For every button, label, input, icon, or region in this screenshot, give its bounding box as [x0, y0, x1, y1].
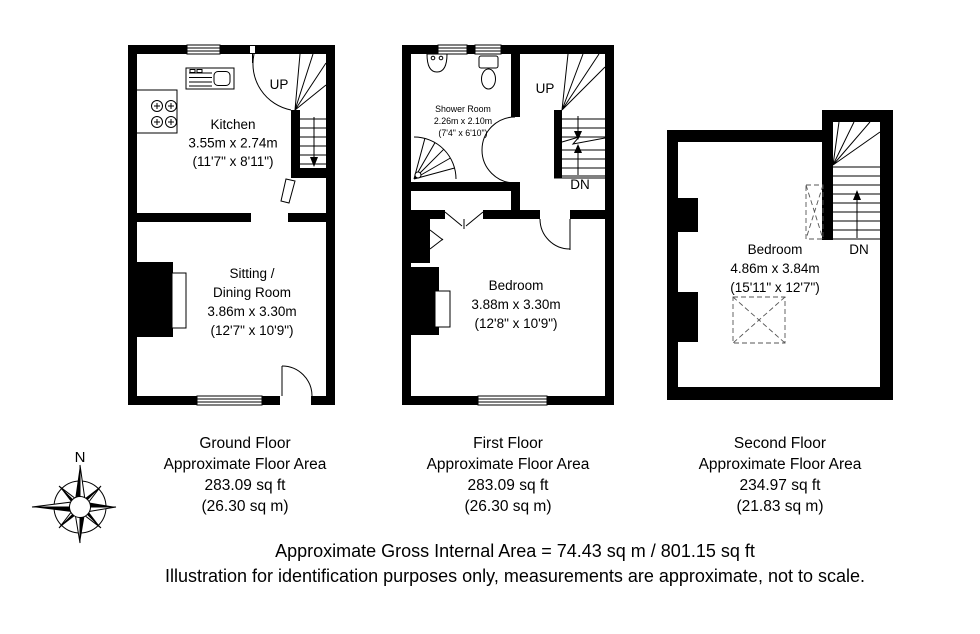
skylight-dashed: [733, 297, 785, 343]
first-floor-plan: Shower Room 2.26m x 2.10m (7'4" x 6'10")…: [402, 45, 614, 405]
restricted-height-dashed: [806, 185, 823, 239]
bedroom-double-doors: [445, 212, 483, 229]
second-floor-caption: Second Floor Approximate Floor Area 234.…: [660, 433, 900, 517]
second-floor-plan: Bedroom 4.86m x 3.84m (15'11" x 12'7") D…: [665, 110, 893, 402]
compass-north-label: N: [75, 449, 86, 466]
floor-area-metric: (26.30 sq m): [125, 496, 365, 517]
understair-cupboard-door: [281, 179, 295, 203]
floor-area-imperial: 234.97 sq ft: [660, 475, 900, 496]
sitting-room-label-line2: Dining Room: [213, 285, 291, 300]
toilet: [479, 56, 498, 89]
first-up-label: UP: [536, 81, 555, 96]
floor-title: First Floor: [388, 433, 628, 454]
stair-arrow-up: [853, 190, 861, 200]
sitting-room-door: [282, 366, 312, 396]
stair-arrow-up: [574, 144, 582, 153]
floor-title: Ground Floor: [125, 433, 365, 454]
ground-walls: [128, 45, 335, 405]
chimney-breast: [137, 262, 173, 337]
shower-room-label: Shower Room: [435, 104, 491, 114]
bedroom-label: Bedroom: [489, 278, 544, 293]
bedroom-door: [540, 219, 570, 250]
bedroom-dims-metric: 3.88m x 3.30m: [471, 297, 560, 312]
floorplan-sheet: Kitchen 3.55m x 2.74m (11'7" x 8'11") Si…: [0, 0, 980, 634]
first-floor-caption: First Floor Approximate Floor Area 283.0…: [388, 433, 628, 517]
shower-room-door-arc: [482, 117, 515, 183]
chimney-breast: [678, 198, 698, 232]
shower-enclosure: [414, 137, 456, 179]
closet-recess: [411, 217, 430, 263]
ground-floor-caption: Ground Floor Approximate Floor Area 283.…: [125, 433, 365, 517]
floor-subtitle: Approximate Floor Area: [125, 454, 365, 475]
chimney-breast: [678, 292, 698, 342]
bedroom-dims-imperial: (12'8" x 10'9"): [474, 316, 557, 331]
sitting-room-dims-metric: 3.86m x 3.30m: [207, 304, 296, 319]
basin: [427, 54, 447, 72]
fireplace-recess: [172, 273, 186, 328]
closet-doors: [430, 230, 443, 249]
hob: [137, 90, 177, 133]
first-windows: [438, 45, 547, 405]
floor-area-imperial: 283.09 sq ft: [388, 475, 628, 496]
footer-disclaimer: Approximate Gross Internal Area = 74.43 …: [30, 539, 980, 589]
shower-room-dims-imperial: (7'4" x 6'10"): [438, 128, 487, 138]
kitchen-label: Kitchen: [210, 117, 255, 132]
floor-subtitle: Approximate Floor Area: [388, 454, 628, 475]
stair-arrow-down: [574, 131, 582, 140]
compass-rose: N: [28, 438, 132, 553]
first-dn-label: DN: [570, 177, 590, 192]
kitchen-dims-metric: 3.55m x 2.74m: [188, 136, 277, 151]
first-walls: [402, 45, 614, 405]
bedroom-label: Bedroom: [748, 242, 803, 257]
ground-up-label: UP: [270, 77, 289, 92]
sitting-room-dims-imperial: (12'7" x 10'9"): [210, 323, 293, 338]
second-dn-label: DN: [849, 242, 869, 257]
stair-direction-arrow: [310, 157, 318, 167]
second-stairs: [833, 122, 880, 239]
kitchen-dims-imperial: (11'7" x 8'11"): [192, 154, 273, 169]
floor-area-metric: (26.30 sq m): [388, 496, 628, 517]
shower-room-dims-metric: 2.26m x 2.10m: [434, 116, 492, 126]
kitchen-sink-unit: [186, 68, 234, 89]
fireplace-recess: [435, 291, 450, 327]
bedroom-dims-metric: 4.86m x 3.84m: [730, 261, 819, 276]
sitting-room-label-line1: Sitting /: [229, 266, 274, 281]
floor-subtitle: Approximate Floor Area: [660, 454, 900, 475]
ground-windows: [187, 45, 262, 405]
floor-area-metric: (21.83 sq m): [660, 496, 900, 517]
floor-area-imperial: 283.09 sq ft: [125, 475, 365, 496]
floor-title: Second Floor: [660, 433, 900, 454]
gross-internal-area: Approximate Gross Internal Area = 74.43 …: [30, 539, 980, 564]
ground-floor-plan: Kitchen 3.55m x 2.74m (11'7" x 8'11") Si…: [128, 45, 335, 405]
disclaimer-text: Illustration for identification purposes…: [30, 564, 980, 589]
bedroom-dims-imperial: (15'11" x 12'7"): [730, 280, 820, 295]
